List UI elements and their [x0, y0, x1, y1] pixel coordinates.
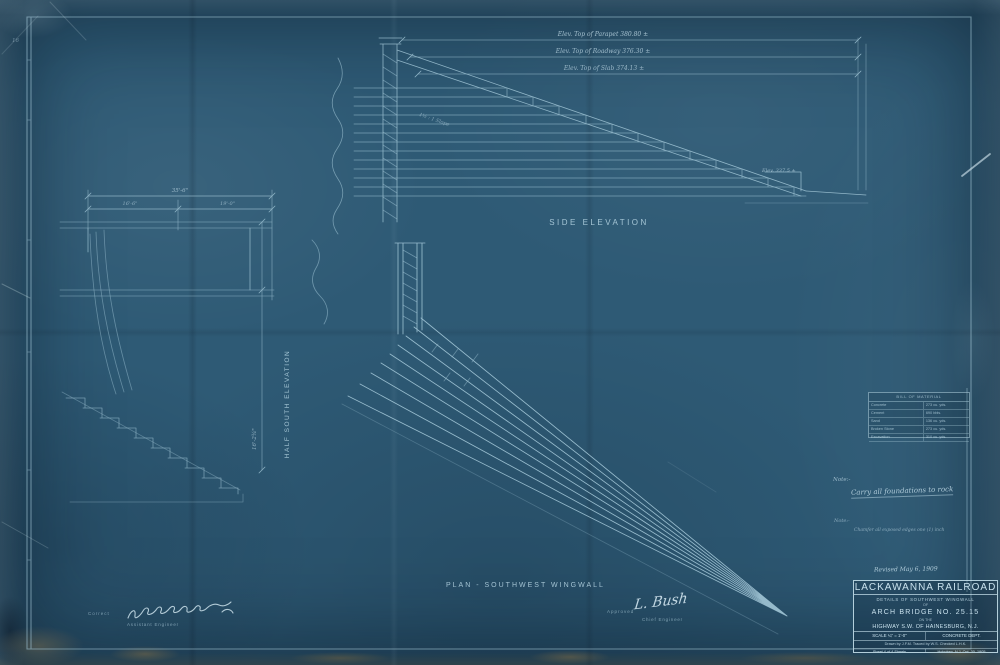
half-south-elevation-linework [60, 190, 275, 502]
scale-dept-row: SCALE ¼" = 1'-0" CONCRETE DEPT. [854, 632, 997, 641]
dim-right-width: 19'-0" [200, 201, 255, 207]
bridge-location: HIGHWAY S.W. OF HAINESBURG, N.J. [854, 623, 997, 632]
table-row: Sand 136 cu. yds. [869, 418, 969, 426]
sheet-count: Sheet 4 of 4 Sheets [854, 649, 926, 653]
bom-item: Concrete [869, 402, 924, 409]
dim-left-width: 16'-6" [105, 201, 155, 207]
bridge-conjunction: ON THE [854, 618, 997, 623]
drawing-linework [0, 0, 1000, 665]
toe-elevation-note: Elev. 337.5 ± [762, 168, 796, 174]
plan-wingwall-linework [312, 240, 787, 634]
note2-label: Note:- [834, 518, 850, 524]
bom-item: Excavation [869, 434, 924, 441]
dim-height: 16'-2¾" [252, 428, 258, 450]
sheet-info-row: Sheet 4 of 4 Sheets Hoboken, N.J. Oct. 3… [854, 649, 997, 653]
half-south-elevation-title: HALF SOUTH ELEVATION [284, 341, 291, 467]
place-and-date: Hoboken, N.J. Oct. 30, 1905 [926, 649, 997, 653]
bridge-number: ARCH BRIDGE NO. 25.15 [854, 608, 997, 618]
credits-row: Drawn by J.F.M. Traced by W.S. Checked L… [854, 641, 997, 649]
note2-text: Chamfer all exposed edges one (1) inch [854, 528, 944, 533]
bom-qty: 136 cu. yds. [924, 418, 969, 425]
scale-note: SCALE ¼" = 1'-0" [854, 632, 926, 640]
bom-qty: 273 cu. yds. [924, 402, 969, 409]
border-frame [27, 17, 971, 649]
table-row: Cement 690 bbls. [869, 410, 969, 418]
dim-overall-width: 35'-6" [146, 188, 214, 194]
note1-label: Note:- [833, 477, 850, 483]
bill-of-material-table: BILL OF MATERIAL Concrete 273 cu. yds. C… [868, 392, 970, 438]
approved-label: Approved [607, 609, 634, 614]
title-block: LACKAWANNA RAILROAD DETAILS OF SOUTHWEST… [853, 580, 998, 653]
table-row: Concrete 273 cu. yds. [869, 402, 969, 410]
assistant-engineer-signature [128, 602, 233, 618]
chief-engineer-title: Chief Engineer [642, 617, 683, 622]
revision-note: Revised May 6, 1909 [874, 565, 938, 573]
assistant-engineer-title: Assistant Engineer [127, 622, 179, 627]
bom-item: Broken Stone [869, 426, 924, 433]
railroad-name: LACKAWANNA RAILROAD [854, 581, 997, 595]
correct-label: Correct [88, 611, 110, 616]
elevation-note-slab: Elev. Top of Slab 374.13 ± [528, 65, 680, 72]
bom-item: Cement [869, 410, 924, 417]
drawing-subtitle-of: OF [854, 603, 997, 608]
side-elevation-title: SIDE ELEVATION [540, 218, 658, 227]
bom-qty: 690 bbls. [924, 410, 969, 417]
bom-qty: 310 cu. yds. [924, 434, 969, 441]
margin-number: 16 [12, 38, 19, 44]
bom-item: Sand [869, 418, 924, 425]
blueprint-sheet: 16 Elev. Top of Parapet 380.80 ± Elev. T… [0, 0, 1000, 665]
table-row: Excavation 310 cu. yds. [869, 434, 969, 442]
elevation-note-roadway: Elev. Top of Roadway 376.30 ± [522, 48, 684, 55]
bom-qty: 273 cu. yds. [924, 426, 969, 433]
elevation-note-parapet: Elev. Top of Parapet 380.80 ± [518, 31, 688, 38]
table-row: Broken Stone 273 cu. yds. [869, 426, 969, 434]
bill-of-material-title: BILL OF MATERIAL [869, 393, 969, 402]
department-name: CONCRETE DEPT. [926, 632, 997, 640]
plan-title: PLAN - SOUTHWEST WINGWALL [446, 582, 604, 589]
drawing-subtitle: DETAILS OF SOUTHWEST WINGWALL [854, 595, 997, 603]
